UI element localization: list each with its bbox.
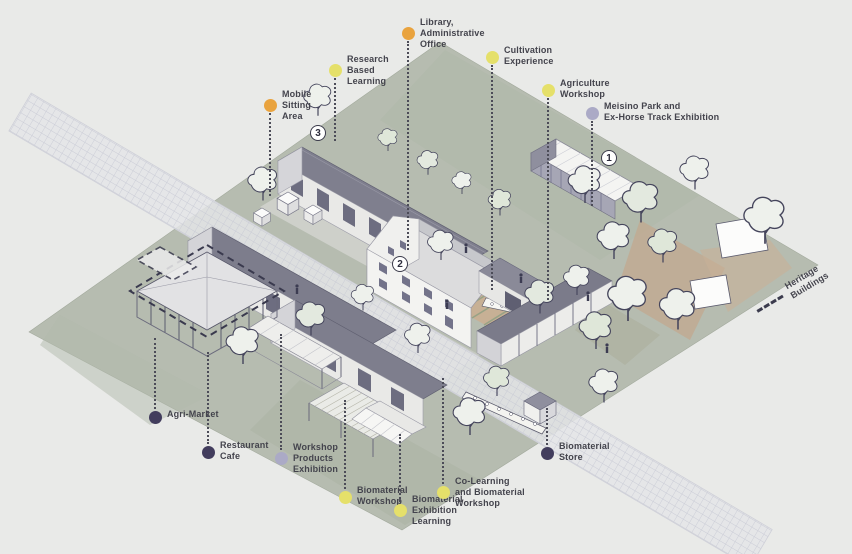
agriculture-workshop-label-line: Workshop: [560, 89, 610, 100]
library-administrative-office-leader-line: [407, 41, 409, 250]
biomaterial-store-label: BiomaterialStore: [559, 441, 610, 463]
restaurant-cafe-label: RestaurantCafe: [220, 440, 269, 462]
research-based-learning-marker-dot: [329, 64, 342, 77]
biomaterial-exhibition-learning-label-line: Learning: [412, 516, 463, 527]
agri-market-label: Agri-Market: [167, 409, 219, 420]
biomaterial-store-leader-line: [546, 408, 548, 445]
meisino-park-ex-horse-track-exhibition-label: Meisino Park andEx-Horse Track Exhibitio…: [604, 101, 719, 123]
building-number-3: 3: [310, 125, 326, 141]
co-learning-and-biomaterial-workshop-label-line: Co-Learning: [455, 476, 525, 487]
meisino-park-ex-horse-track-exhibition-marker-dot: [586, 107, 599, 120]
agriculture-workshop-label-line: Agriculture: [560, 78, 610, 89]
co-learning-and-biomaterial-workshop-label-line: and Biomaterial: [455, 487, 525, 498]
co-learning-and-biomaterial-workshop-label: Co-Learningand BiomaterialWorkshop: [455, 476, 525, 509]
research-based-learning-label-line: Based: [347, 65, 389, 76]
masterplan-diagram: Library,AdministrativeOfficeResearchBase…: [0, 0, 852, 554]
agriculture-workshop-marker-dot: [542, 84, 555, 97]
biomaterial-exhibition-learning-marker-dot: [394, 504, 407, 517]
agri-market-leader-line: [154, 338, 156, 409]
meisino-park-ex-horse-track-exhibition-label-line: Ex-Horse Track Exhibition: [604, 112, 719, 123]
agriculture-workshop-label: AgricultureWorkshop: [560, 78, 610, 100]
cultivation-experience-label-line: Cultivation: [504, 45, 554, 56]
mobile-sitting-area-label-line: Sitting: [282, 100, 311, 111]
restaurant-cafe-leader-line: [207, 352, 209, 444]
workshop-products-exhibition-marker-dot: [275, 452, 288, 465]
meisino-park-ex-horse-track-exhibition-label-line: Meisino Park and: [604, 101, 719, 112]
agriculture-workshop-leader-line: [547, 98, 549, 300]
biomaterial-workshop-leader-line: [344, 400, 346, 489]
library-administrative-office-label-line: Library,: [420, 17, 485, 28]
cultivation-experience-leader-line: [491, 65, 493, 290]
mobile-sitting-area-leader-line: [269, 113, 271, 196]
co-learning-and-biomaterial-workshop-label-line: Workshop: [455, 498, 525, 509]
library-administrative-office-marker-dot: [402, 27, 415, 40]
co-learning-and-biomaterial-workshop-leader-line: [442, 378, 444, 484]
site-illustration: [0, 0, 852, 554]
research-based-learning-label-line: Learning: [347, 76, 389, 87]
cultivation-experience-label: CultivationExperience: [504, 45, 554, 67]
biomaterial-workshop-marker-dot: [339, 491, 352, 504]
biomaterial-store-marker-dot: [541, 447, 554, 460]
workshop-products-exhibition-label-line: Workshop: [293, 442, 338, 453]
meisino-park-ex-horse-track-exhibition-leader-line: [591, 121, 593, 206]
workshop-products-exhibition-leader-line: [280, 334, 282, 450]
restaurant-cafe-label-line: Cafe: [220, 451, 269, 462]
library-administrative-office-label-line: Administrative: [420, 28, 485, 39]
workshop-products-exhibition-label-line: Products: [293, 453, 338, 464]
agri-market-marker-dot: [149, 411, 162, 424]
workshop-products-exhibition-label-line: Exhibition: [293, 464, 338, 475]
research-based-learning-label: ResearchBasedLearning: [347, 54, 389, 87]
biomaterial-store-label-line: Store: [559, 452, 610, 463]
cultivation-experience-marker-dot: [486, 51, 499, 64]
building-number-1: 1: [601, 150, 617, 166]
research-based-learning-leader-line: [334, 78, 336, 141]
mobile-sitting-area-marker-dot: [264, 99, 277, 112]
workshop-products-exhibition-label: WorkshopProductsExhibition: [293, 442, 338, 475]
research-based-learning-label-line: Research: [347, 54, 389, 65]
library-administrative-office-label: Library,AdministrativeOffice: [420, 17, 485, 50]
mobile-sitting-area-label-line: Area: [282, 111, 311, 122]
library-administrative-office-label-line: Office: [420, 39, 485, 50]
restaurant-cafe-marker-dot: [202, 446, 215, 459]
biomaterial-store-label-line: Biomaterial: [559, 441, 610, 452]
restaurant-cafe-label-line: Restaurant: [220, 440, 269, 451]
agri-market-label-line: Agri-Market: [167, 409, 219, 420]
co-learning-and-biomaterial-workshop-marker-dot: [437, 486, 450, 499]
building-number-2: 2: [392, 256, 408, 272]
biomaterial-exhibition-learning-leader-line: [399, 434, 401, 502]
mobile-sitting-area-label-line: Mobile: [282, 89, 311, 100]
cultivation-experience-label-line: Experience: [504, 56, 554, 67]
heritage-buildings-dash-line: [756, 294, 783, 312]
mobile-sitting-area-label: MobileSittingArea: [282, 89, 311, 122]
